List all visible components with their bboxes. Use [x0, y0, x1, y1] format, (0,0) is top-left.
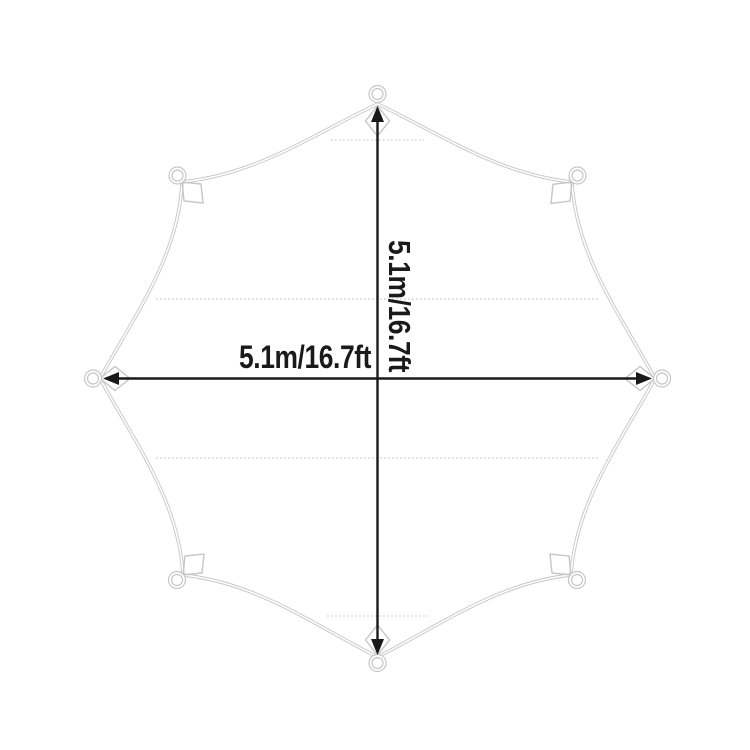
width-label: 5.1m/16.7ft [239, 339, 372, 375]
height-label: 5.1m/16.7ft [382, 240, 417, 372]
height-dimension: 5.1m/16.7ft [371, 106, 417, 655]
corner-loop-icon-bottom-left [170, 573, 184, 587]
arrow-up-icon [371, 106, 384, 122]
patch-top-left [182, 182, 203, 203]
corner-loop-icon-bottom [371, 656, 385, 670]
patch-bottom-left [183, 554, 204, 575]
patch-top-right [551, 182, 572, 203]
corner-loop-icon-left [86, 372, 100, 386]
corner-loop-icon-bottom-right [570, 573, 584, 587]
diagram-svg: 5.1m/16.7ft 5.1m/16.7ft [0, 0, 750, 750]
arrow-down-icon [371, 639, 384, 655]
patch-bottom-right [550, 554, 571, 575]
corner-loop-icon-right [655, 372, 669, 386]
corner-loop-icon-top-left [171, 169, 185, 183]
tarp-dimension-diagram: 5.1m/16.7ft 5.1m/16.7ft [0, 0, 750, 750]
corner-loop-icon-top [371, 87, 385, 101]
corner-loop-icon-top-right [571, 169, 585, 183]
